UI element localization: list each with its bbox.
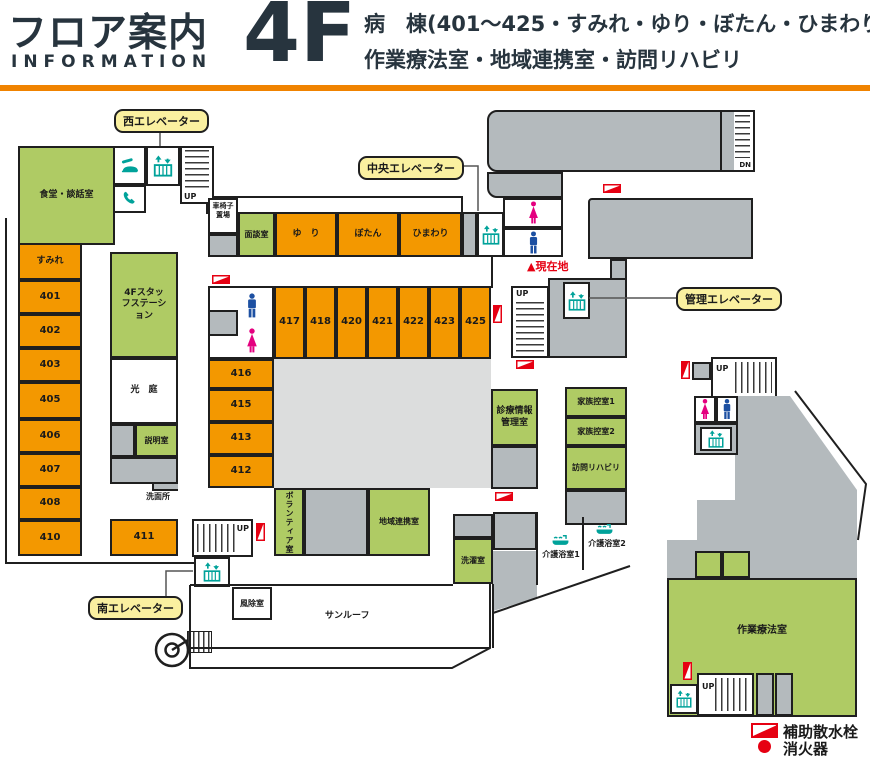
floor-desc-line2: 作業療法室・地域連携室・訪問リハビリ	[364, 44, 742, 74]
gray-room-11	[756, 673, 774, 716]
pantry-icon	[119, 157, 140, 174]
room-kaigo1: 介護浴室1	[541, 549, 581, 560]
courtyard	[274, 359, 491, 488]
phone-room	[113, 185, 146, 213]
room-laundry: 洗濯室	[453, 538, 493, 584]
wall-stub-b	[461, 196, 463, 212]
northeast-stairs: DN	[720, 110, 755, 172]
washstand-area	[110, 457, 178, 484]
hydrant-icon	[495, 492, 513, 501]
room-415: 415	[208, 389, 274, 422]
gray-block-north	[487, 110, 723, 172]
east-elevator-room	[700, 427, 732, 451]
bath-icon	[595, 523, 614, 536]
room-413: 413	[208, 422, 274, 455]
room-402: 402	[18, 314, 82, 348]
room-fujo: 風除室	[232, 587, 272, 620]
stairs-treads	[185, 150, 209, 190]
room-chiiki: 地域連携室	[368, 488, 430, 556]
stairs-up-label: UP	[715, 365, 729, 373]
toilet-central-female	[503, 198, 563, 228]
legend-extinguisher-label: 消火器	[783, 738, 828, 757]
room-408: 408	[18, 487, 82, 520]
room-kaigo2: 介護浴室2	[587, 538, 627, 549]
gray-block-east	[588, 198, 753, 259]
room-418: 418	[305, 286, 336, 359]
elevator-icon	[481, 225, 501, 245]
green-room-b	[722, 551, 750, 578]
stairs-treads	[735, 115, 750, 158]
room-light-garden: 光 庭	[110, 358, 178, 424]
room-homon: 訪問リハビリ	[565, 446, 627, 490]
male-icon	[246, 293, 258, 319]
bath-icon	[551, 534, 570, 547]
gray-room-4	[304, 488, 368, 556]
page-subtitle: INFORMATION	[11, 52, 212, 72]
room-425: 425	[460, 286, 491, 359]
room-405: 405	[18, 382, 82, 419]
outer-wall-bottom-left	[5, 562, 195, 564]
phone-icon	[121, 191, 138, 208]
gray-strip-1	[462, 212, 477, 257]
stairs-dn-label: DN	[738, 162, 752, 169]
elevator-icon	[675, 690, 693, 708]
stairs-treads	[516, 302, 544, 353]
gray-room-10	[692, 362, 711, 380]
room-staff-station: 4Fスタッフステーション	[110, 252, 178, 358]
central-elevator-callout: 中央エレベーター	[358, 156, 464, 180]
female-icon	[246, 328, 258, 354]
hydrant-icon	[683, 662, 692, 680]
room-410: 410	[18, 520, 82, 556]
female-icon	[528, 201, 539, 225]
floor-desc-line1: 病 棟(401〜425・すみれ・ゆり・ぼたん・ひまわり)	[364, 8, 870, 38]
room-setsumei: 説明室	[135, 424, 178, 457]
floor-guide-sign: フロア案内 INFORMATION 4F 病 棟(401〜425・すみれ・ゆり・…	[0, 0, 870, 757]
room-kazoku2: 家族控室2	[565, 417, 627, 446]
header-rule	[0, 85, 870, 91]
elevator-icon	[202, 562, 222, 582]
gray-room-8	[493, 512, 537, 550]
spiral-ramp-treads	[187, 631, 212, 653]
stairs-landing	[722, 112, 734, 170]
gray-room-5	[491, 446, 538, 489]
hydrant-icon	[516, 360, 534, 369]
room-shinryo: 診療情報管理室	[491, 389, 538, 446]
wall-stub-c	[491, 255, 493, 288]
stairs-treads	[715, 678, 749, 711]
elevator-icon	[567, 291, 587, 311]
gray-room-6	[565, 490, 627, 525]
current-location-marker: ▲現在地	[527, 258, 568, 274]
elevator-icon	[152, 155, 174, 177]
pantry-room	[113, 146, 146, 185]
room-407: 407	[18, 453, 82, 487]
admin-stairs: UP	[511, 286, 549, 358]
room-kazoku1: 家族控室1	[565, 387, 627, 417]
room-sumire: すみれ	[18, 243, 82, 280]
hydrant-icon	[603, 184, 621, 193]
legend-hydrant-icon	[751, 723, 778, 738]
room-416: 416	[208, 359, 274, 389]
floor-number: 4F	[243, 0, 356, 81]
west-elevator-room	[146, 146, 180, 186]
gray-admin-stub	[610, 259, 627, 280]
room-422: 422	[398, 286, 429, 359]
hydrant-icon	[212, 275, 230, 284]
gray-room-3	[208, 310, 238, 336]
south-elevator-callout: 南エレベーター	[88, 596, 183, 620]
stairs-treads	[735, 362, 772, 393]
hydrant-icon	[256, 523, 265, 541]
wheelchair-area: 車椅子置場	[208, 198, 238, 234]
central-elevator-room	[477, 212, 504, 257]
room-420: 420	[336, 286, 367, 359]
southeast-elevator-room	[670, 684, 698, 714]
toilet-east-male	[716, 396, 738, 423]
toilet-central-male	[503, 228, 563, 257]
toilet-east-female	[694, 396, 716, 423]
hydrant-icon	[681, 361, 690, 379]
page-title: フロア案内	[8, 2, 208, 58]
room-botan: ぼたん	[337, 212, 399, 257]
south-elevator-room	[194, 557, 230, 587]
gray-room-9	[493, 551, 537, 611]
room-411: 411	[110, 519, 178, 556]
stairs-treads	[197, 524, 237, 552]
stairs-up-label: UP	[701, 683, 715, 691]
east-elevator-block	[694, 423, 738, 455]
male-icon	[722, 399, 732, 420]
admin-elevator-callout: 管理エレベーター	[676, 287, 782, 311]
room-406: 406	[18, 419, 82, 453]
room-401: 401	[18, 280, 82, 314]
gray-room-1	[110, 424, 135, 457]
west-elevator-callout: 西エレベーター	[114, 109, 209, 133]
room-421: 421	[367, 286, 398, 359]
room-mendan: 面談室	[238, 212, 275, 257]
legend-extinguisher-icon	[758, 740, 771, 753]
senmenjo-label: 洗面所	[146, 491, 170, 502]
admin-elevator-room	[563, 282, 590, 319]
southeast-stairs: UP	[697, 673, 754, 716]
washstand-step	[152, 484, 178, 491]
hydrant-icon	[493, 305, 502, 323]
outer-wall-left	[5, 218, 7, 564]
wall-top-center	[206, 196, 463, 198]
gray-room-7	[453, 514, 493, 538]
south-stairs: UP	[192, 519, 253, 557]
gray-room-12	[775, 673, 793, 716]
stairs-up-label: UP	[515, 290, 529, 298]
east-stairs: UP	[711, 357, 777, 398]
room-himawari: ひまわり	[399, 212, 462, 257]
green-room-a	[695, 551, 722, 578]
room-dining: 食堂・談話室	[18, 146, 115, 245]
toilet-center-left	[208, 286, 274, 359]
gray-block-small	[487, 172, 563, 198]
elevator-icon	[707, 430, 725, 448]
room-423: 423	[429, 286, 460, 359]
room-412: 412	[208, 455, 274, 488]
male-icon	[528, 231, 539, 255]
sunroof-label: サンルーフ	[325, 608, 369, 621]
stairs-up-label: UP	[236, 525, 250, 533]
stairs-up-label: UP	[183, 193, 197, 201]
room-yuri: ゆ り	[275, 212, 337, 257]
gray-room-2	[208, 234, 238, 257]
room-417: 417	[274, 286, 305, 359]
room-403: 403	[18, 348, 82, 382]
room-volunteer: ボランティア室	[274, 488, 304, 556]
west-stairs: UP	[180, 146, 214, 204]
female-icon	[700, 399, 710, 420]
